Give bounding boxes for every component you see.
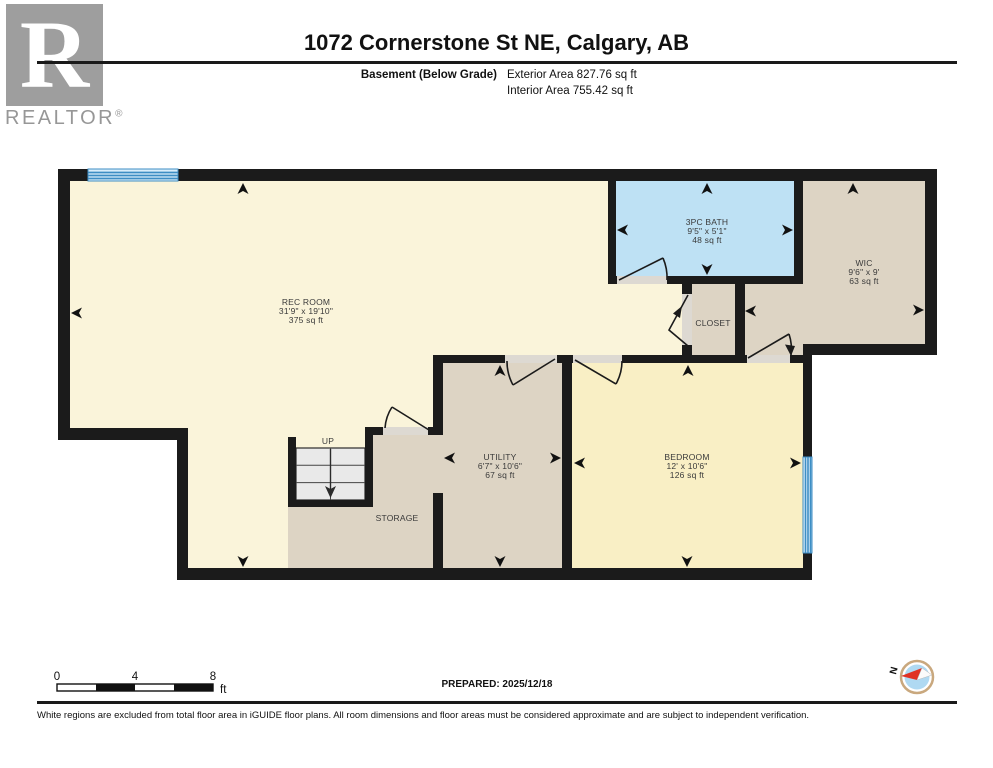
footer-divider: [37, 701, 957, 704]
closet-label: CLOSET: [695, 318, 730, 328]
rec-room-floor: [70, 180, 608, 284]
window-top: [88, 169, 178, 181]
scale-4: 4: [132, 671, 139, 683]
stairs-up-label: UP: [322, 436, 334, 446]
bedroom-area: 126 sq ft: [670, 470, 705, 480]
bath-area: 48 sq ft: [692, 235, 722, 245]
wall-exterior-left-lower: [177, 428, 188, 580]
compass-icon: N: [888, 661, 933, 693]
scale-0: 0: [54, 671, 60, 683]
storage-label: STORAGE: [376, 513, 419, 523]
prepared-date: PREPARED: 2025/12/18: [442, 679, 553, 690]
wall-exterior-step: [58, 428, 188, 440]
floor-plan: REC ROOM 31'9" x 19'10" 375 sq ft 3PC BA…: [0, 0, 993, 768]
wall-exterior-top: [58, 169, 937, 181]
wall-utility-west-upper: [433, 355, 443, 431]
wall-exterior-left: [58, 169, 70, 440]
wall-exterior-right: [925, 169, 937, 355]
wic-door-opening: [747, 355, 790, 363]
wall-bath-left: [608, 181, 616, 284]
floorplan-page: { "palette": { "wall": "#1B1B1B", "finis…: [0, 0, 993, 768]
scale-8: 8: [210, 671, 216, 683]
wall-closet-right: [735, 284, 745, 363]
bedroom-door-opening: [573, 355, 622, 363]
scale-unit: ft: [220, 684, 227, 696]
scale-bar: 0 4 8 ft: [54, 671, 227, 696]
wall-stair-bottom: [288, 500, 373, 507]
rec-room-area: 375 sq ft: [289, 315, 324, 325]
window-bedroom-right: [803, 457, 812, 553]
disclaimer-text: White regions are excluded from total fl…: [37, 710, 967, 721]
wall-bath-right: [794, 181, 803, 284]
wall-stair-left: [288, 437, 296, 507]
wall-utility-west-lower: [433, 493, 443, 568]
storage-door-opening: [383, 427, 428, 435]
staircase: [296, 448, 365, 500]
wall-exterior-wic-bottom: [803, 344, 937, 355]
wic-area: 63 sq ft: [849, 276, 879, 286]
wall-bedroom-west: [562, 355, 572, 568]
wall-exterior-bottom: [177, 568, 812, 580]
compass-north-label: N: [888, 666, 900, 676]
utility-area: 67 sq ft: [485, 470, 515, 480]
wall-stair-right: [365, 427, 373, 503]
storage-floor: [373, 427, 433, 568]
